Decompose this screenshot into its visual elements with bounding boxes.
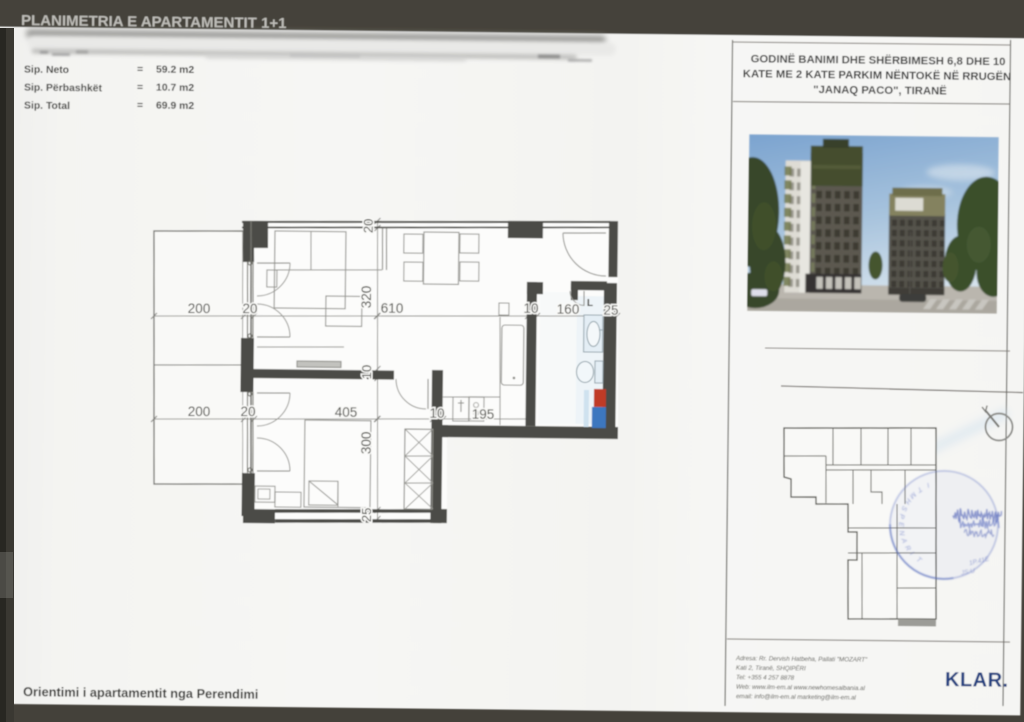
svg-text:195: 195 — [472, 407, 495, 422]
svg-text:20: 20 — [242, 301, 257, 316]
svg-text:10: 10 — [359, 365, 374, 380]
svg-text:59.2 m2: 59.2 m2 — [156, 64, 194, 75]
svg-text:25: 25 — [359, 508, 374, 523]
svg-text:10: 10 — [523, 301, 538, 316]
svg-text:Sip. Përbashkët: Sip. Përbashkët — [24, 82, 103, 94]
svg-text:25: 25 — [603, 303, 618, 318]
svg-text:Orientimi i apartamentit nga P: Orientimi i apartamentit nga Perendimi — [23, 684, 259, 702]
svg-text:20: 20 — [240, 404, 255, 419]
svg-text:KLAR.: KLAR. — [945, 669, 1009, 692]
svg-text:Adresa: Rr. Dervish Hatbeha, P: Adresa: Rr. Dervish Hatbeha, Pallati "MO… — [735, 655, 868, 664]
svg-text:Web: www.ilm-em.al www: Web: www.ilm-em.al www.newhomesalbania.a… — [736, 684, 866, 692]
svg-text:405: 405 — [335, 405, 358, 420]
svg-text:Tel: +355 4 257 8878: Tel: +355 4 257 8878 — [736, 674, 795, 682]
svg-text:10: 10 — [429, 406, 444, 421]
svg-text:"JANAQ PACO", TIRANË: "JANAQ PACO", TIRANË — [813, 83, 947, 98]
svg-text:160: 160 — [557, 302, 580, 317]
svg-text:=: = — [137, 82, 143, 93]
svg-text:L: L — [587, 298, 593, 309]
svg-text:=: = — [137, 100, 143, 111]
svg-text:Sip. Neto: Sip. Neto — [24, 64, 69, 76]
svg-text:69.9 m2: 69.9 m2 — [156, 100, 194, 111]
svg-text:email: info@ilm-em.al mar: email: info@ilm-em.al marketing@ilm-em.a… — [736, 693, 857, 701]
svg-text:200: 200 — [188, 301, 211, 316]
svg-text:Kati 2, Tiranë, SHQIPËRI: Kati 2, Tiranë, SHQIPËRI — [736, 665, 806, 673]
svg-text:Sip. Total: Sip. Total — [24, 100, 70, 112]
svg-text:200: 200 — [188, 404, 211, 419]
svg-text:E: E — [897, 522, 904, 527]
svg-text:610: 610 — [381, 301, 404, 316]
svg-text:10.7 m2: 10.7 m2 — [156, 82, 194, 93]
svg-text:=: = — [137, 64, 143, 75]
svg-text:20: 20 — [361, 219, 376, 234]
svg-text:300: 300 — [359, 432, 374, 455]
svg-text:320: 320 — [359, 286, 374, 309]
